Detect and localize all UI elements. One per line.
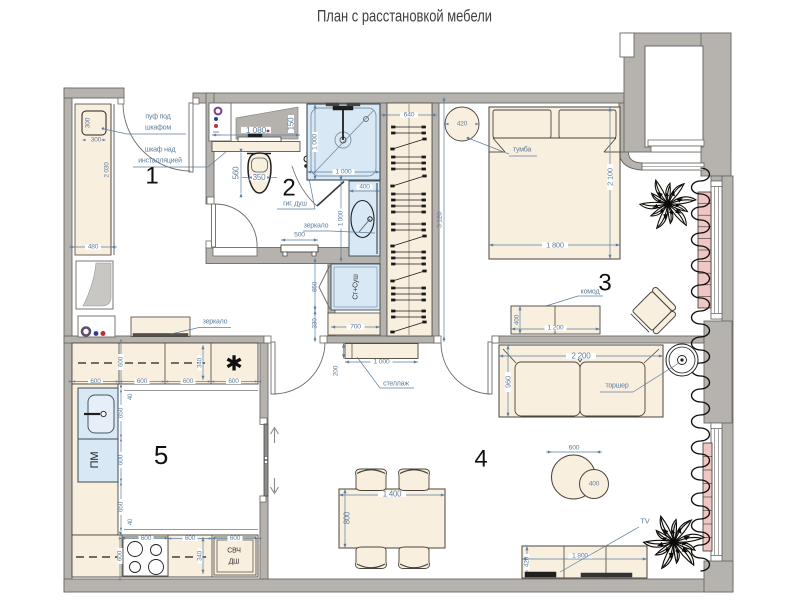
svg-text:600: 600 xyxy=(117,550,124,561)
svg-text:500: 500 xyxy=(294,232,305,239)
svg-text:1 800: 1 800 xyxy=(572,553,588,560)
svg-text:560: 560 xyxy=(232,166,241,179)
svg-text:600: 600 xyxy=(228,378,239,385)
svg-text:TV: TV xyxy=(640,517,649,526)
svg-text:300: 300 xyxy=(91,137,102,144)
svg-text:5: 5 xyxy=(154,440,168,470)
svg-text:200: 200 xyxy=(333,365,340,376)
svg-text:пуф под: пуф под xyxy=(145,114,170,121)
svg-text:400: 400 xyxy=(589,481,600,488)
svg-text:600: 600 xyxy=(118,454,125,465)
svg-text:2 100: 2 100 xyxy=(606,168,615,186)
svg-text:800: 800 xyxy=(343,511,352,524)
svg-text:✱: ✱ xyxy=(225,353,242,376)
svg-text:2 200: 2 200 xyxy=(571,352,591,361)
svg-text:3: 3 xyxy=(598,270,611,297)
svg-text:420: 420 xyxy=(524,556,531,567)
svg-text:600: 600 xyxy=(230,535,241,542)
svg-text:шкаф над: шкаф над xyxy=(145,147,176,154)
svg-text:300: 300 xyxy=(85,117,92,128)
svg-text:700: 700 xyxy=(350,324,361,331)
svg-text:600: 600 xyxy=(141,535,152,542)
svg-text:зеркало: зеркало xyxy=(304,223,329,230)
svg-text:зеркало: зеркало xyxy=(203,319,228,326)
svg-text:340: 340 xyxy=(197,357,204,367)
svg-text:1 200: 1 200 xyxy=(547,325,563,332)
svg-text:150: 150 xyxy=(287,117,296,130)
svg-text:торшер: торшер xyxy=(605,383,628,390)
svg-text:600: 600 xyxy=(137,378,148,385)
svg-text:600: 600 xyxy=(569,445,580,452)
svg-text:400: 400 xyxy=(359,184,370,191)
svg-text:2: 2 xyxy=(282,175,295,202)
svg-text:1 000: 1 000 xyxy=(335,169,351,176)
svg-text:350: 350 xyxy=(253,173,266,182)
svg-text:420: 420 xyxy=(457,121,468,128)
svg-text:960: 960 xyxy=(504,376,513,388)
svg-text:комод: комод xyxy=(581,289,600,296)
svg-text:400: 400 xyxy=(514,314,521,325)
svg-text:тумба: тумба xyxy=(513,146,531,154)
svg-text:600: 600 xyxy=(118,356,125,367)
svg-text:ДШ: ДШ xyxy=(229,559,240,566)
svg-text:330: 330 xyxy=(312,318,319,329)
svg-text:Ст+Суш: Ст+Суш xyxy=(353,274,360,300)
svg-text:4: 4 xyxy=(474,446,487,473)
svg-text:600: 600 xyxy=(183,378,194,385)
svg-text:1: 1 xyxy=(145,163,158,190)
svg-text:640: 640 xyxy=(404,112,415,119)
svg-text:40: 40 xyxy=(128,393,134,400)
svg-text:480: 480 xyxy=(88,244,99,251)
svg-text:3 120: 3 120 xyxy=(437,212,444,228)
svg-text:1 080: 1 080 xyxy=(246,125,267,135)
svg-text:1 000: 1 000 xyxy=(312,134,319,150)
svg-text:600: 600 xyxy=(185,535,196,542)
svg-text:шкафом: шкафом xyxy=(145,125,171,132)
svg-text:650: 650 xyxy=(118,407,125,418)
svg-text:1 400: 1 400 xyxy=(383,490,402,499)
svg-text:1 000: 1 000 xyxy=(373,359,389,366)
svg-text:гиг. душ: гиг. душ xyxy=(283,201,307,208)
svg-text:стеллаж: стеллаж xyxy=(383,381,409,388)
svg-text:1 000: 1 000 xyxy=(338,210,345,226)
svg-text:1 800: 1 800 xyxy=(546,241,564,250)
svg-text:СВЧ: СВЧ xyxy=(227,548,241,555)
svg-text:ПМ: ПМ xyxy=(89,452,101,469)
svg-text:40: 40 xyxy=(128,518,134,525)
svg-text:План с расстановкой мебели: План с расстановкой мебели xyxy=(317,8,492,26)
svg-text:650: 650 xyxy=(118,501,125,512)
svg-text:650: 650 xyxy=(312,281,319,292)
svg-text:2 030: 2 030 xyxy=(104,162,111,178)
svg-text:340: 340 xyxy=(197,550,204,560)
